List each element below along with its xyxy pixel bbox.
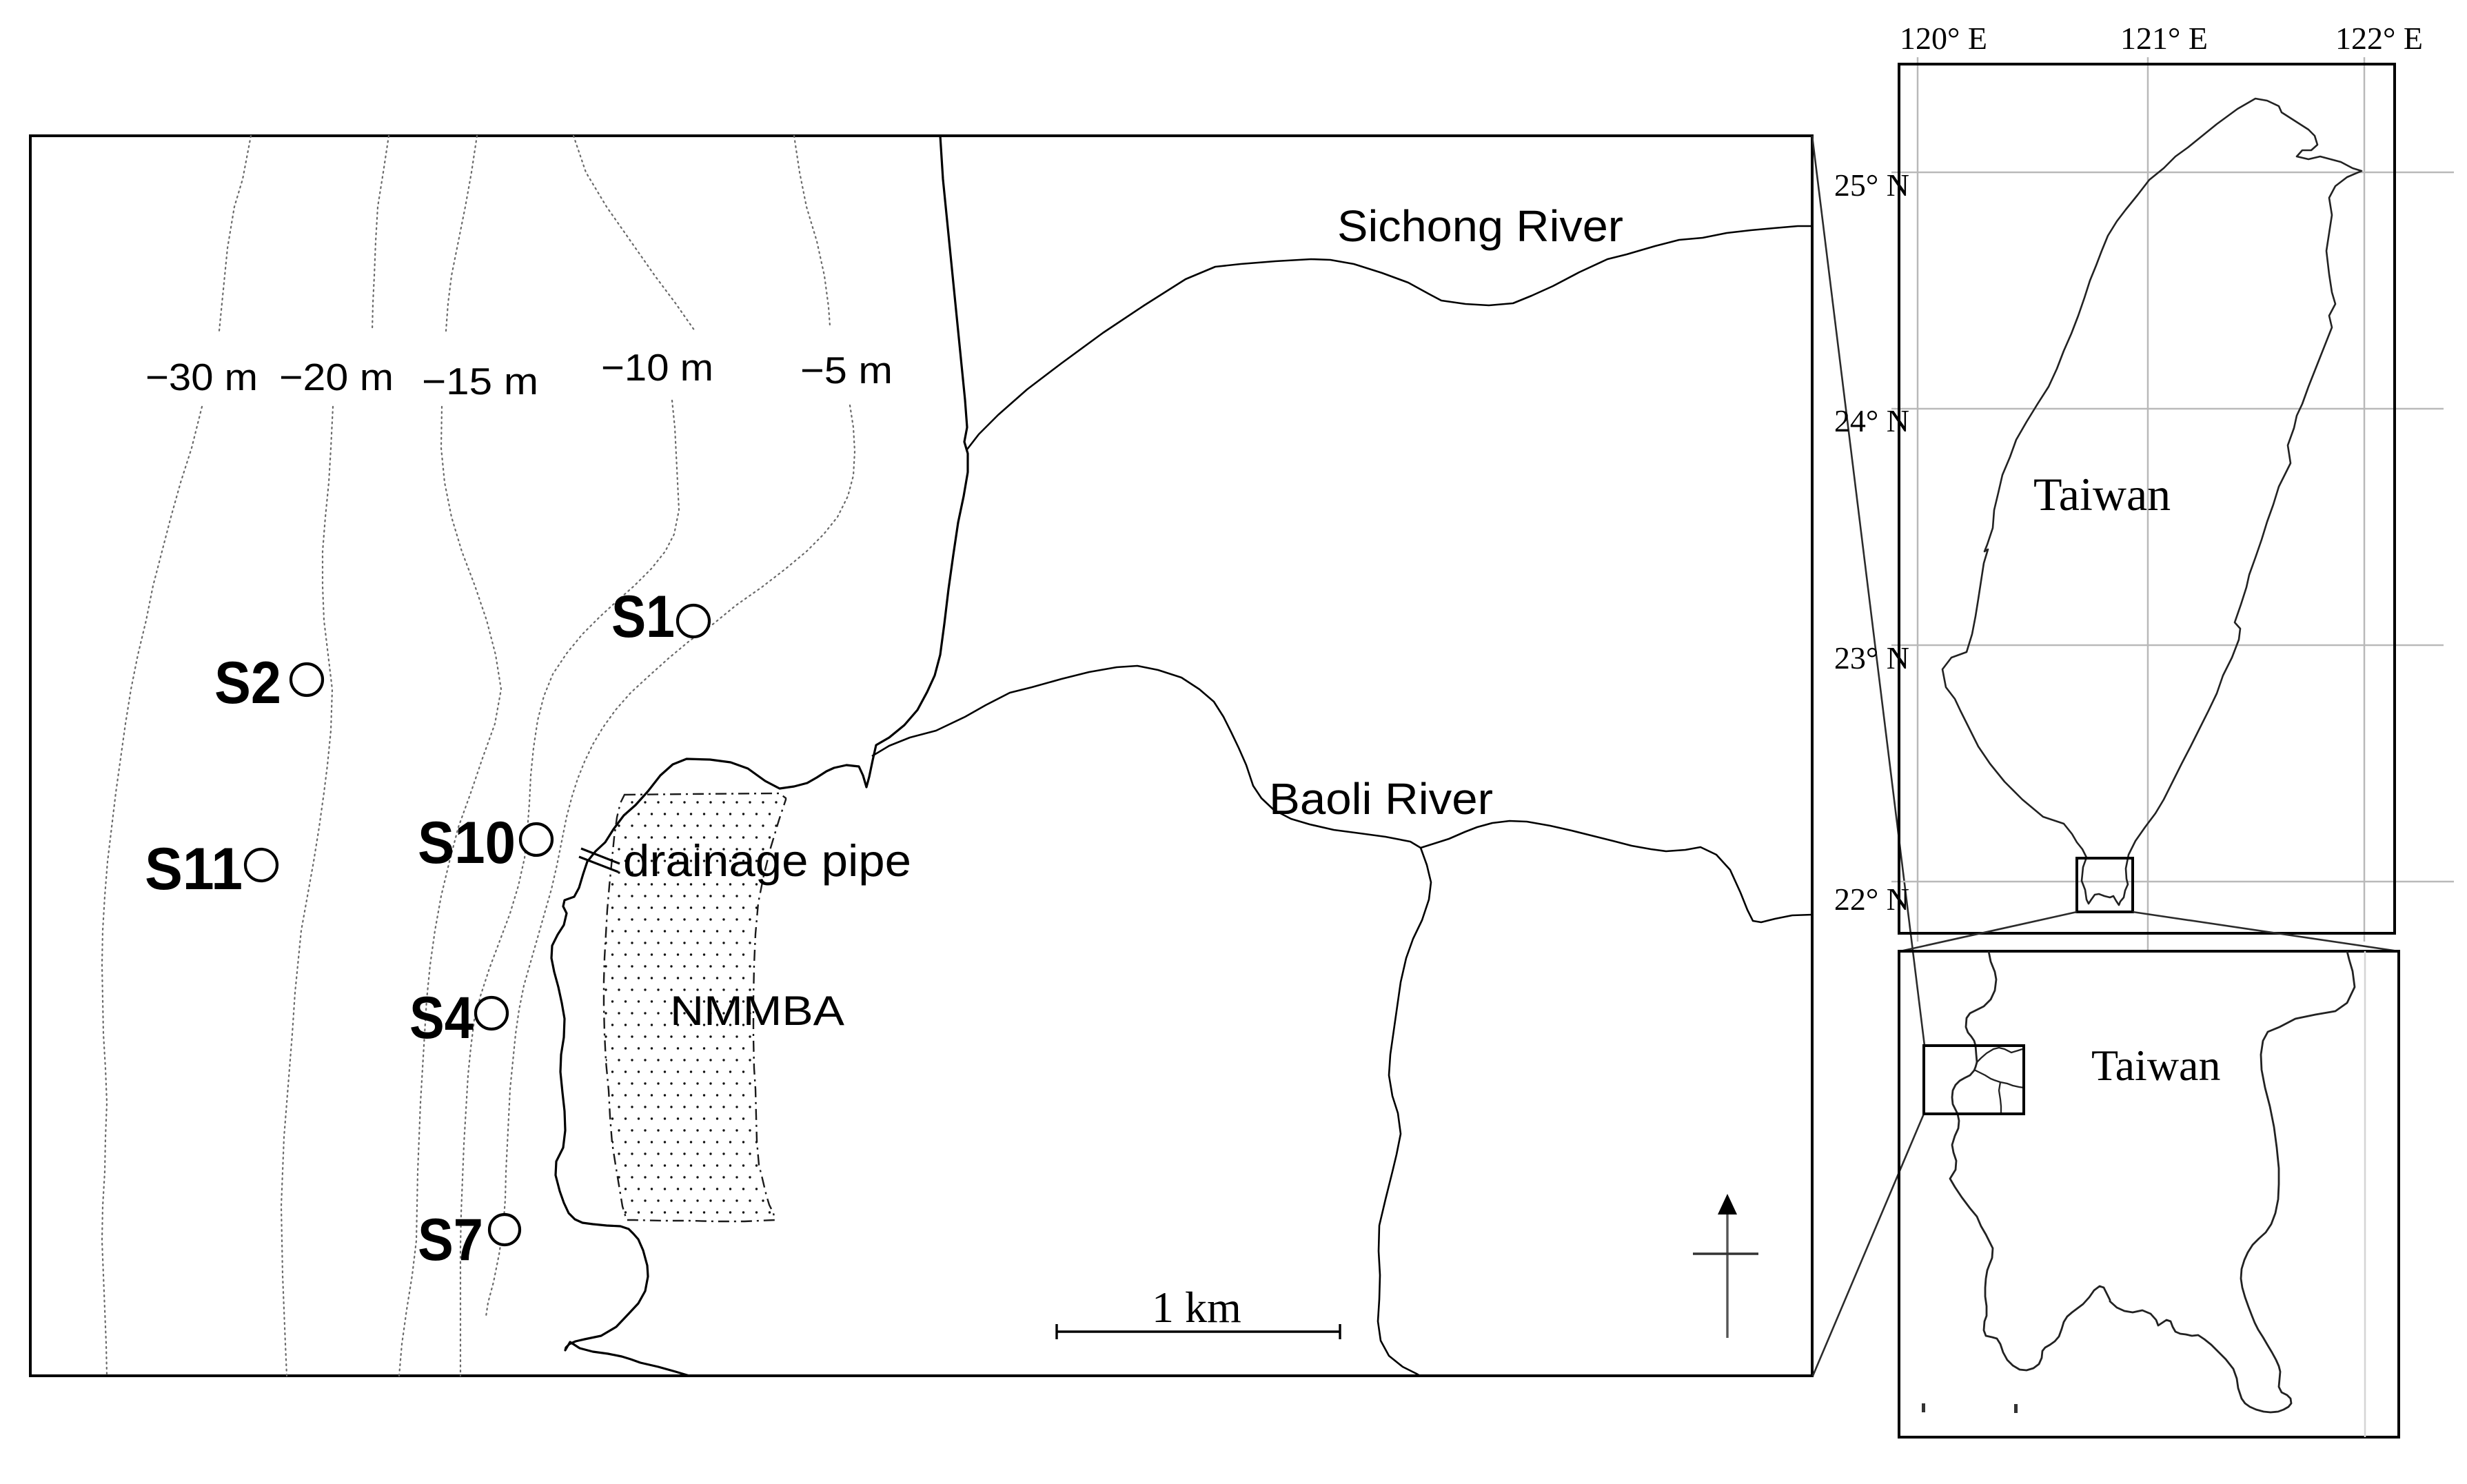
svg-text:S10: S10 [418,810,516,876]
svg-text:NMMBA: NMMBA [670,988,844,1034]
svg-text:1 km: 1 km [1152,1283,1241,1332]
svg-text:122° E: 122° E [2335,21,2423,56]
svg-text:−5 m: −5 m [800,349,893,392]
svg-text:22° N: 22° N [1834,882,1909,917]
svg-text:−20 m: −20 m [279,356,394,398]
svg-text:Taiwan: Taiwan [2033,468,2171,520]
svg-text:−15 m: −15 m [422,360,538,403]
svg-text:drainage pipe: drainage pipe [623,835,911,886]
svg-text:24° N: 24° N [1834,403,1909,438]
svg-text:Taiwan: Taiwan [2091,1041,2220,1090]
svg-text:S11: S11 [145,836,243,902]
svg-text:−10 m: −10 m [601,346,713,389]
svg-text:120° E: 120° E [1900,21,1987,56]
svg-text:−30 m: −30 m [145,356,258,398]
svg-text:25° N: 25° N [1834,167,1909,203]
svg-text:S2: S2 [214,650,281,716]
svg-text:Baoli River: Baoli River [1269,774,1493,824]
svg-text:121° E: 121° E [2120,21,2208,56]
svg-text:23° N: 23° N [1834,640,1909,675]
svg-text:S7: S7 [418,1207,483,1273]
svg-text:S1: S1 [611,584,675,650]
svg-text:Sichong River: Sichong River [1337,201,1623,251]
svg-text:S4: S4 [409,985,474,1051]
